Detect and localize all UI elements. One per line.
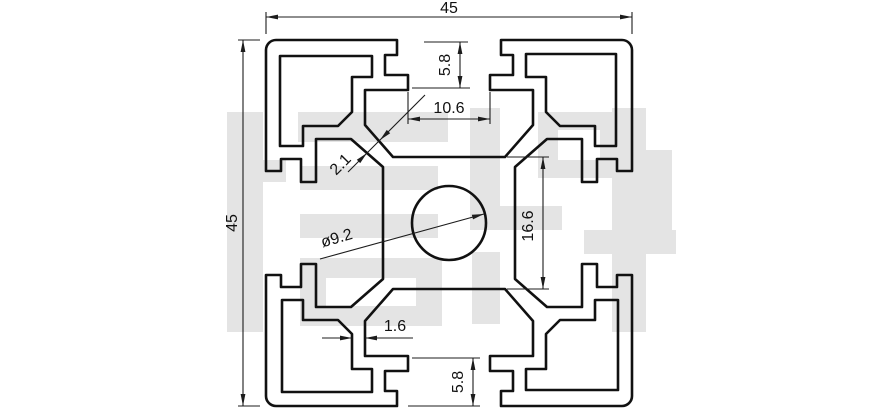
dim-label-dim-slot-depth-top: 5.8 [437, 54, 454, 76]
dimension-arrowhead [365, 336, 377, 341]
dimension-arrowhead [620, 15, 632, 20]
dimension-annotations [238, 12, 632, 406]
dim-label-dim-slot-width: 10.6 [433, 100, 464, 117]
dimension-arrowhead [241, 40, 246, 52]
dimension-arrowhead [241, 394, 246, 406]
technical-drawing-canvas: 信牌45455.810.62.1ø9.216.61.65.8 [0, 0, 880, 420]
technical-drawing-page: 信牌45455.810.62.1ø9.216.61.65.8 [0, 0, 880, 420]
dimension-arrowhead [458, 76, 463, 88]
watermark-stroke [300, 166, 438, 190]
dim-label-dim-slot-depth-bottom: 5.8 [450, 371, 467, 393]
corner-cavity-hole [526, 300, 618, 390]
watermark: 信牌 [227, 108, 676, 332]
dimension-arrowhead [458, 42, 463, 54]
dimension-arrowhead [266, 15, 278, 20]
dim-label-dim-wall-thickness: 1.6 [384, 318, 406, 335]
dimension-arrowhead [541, 277, 546, 289]
watermark-text: 信牌 [449, 220, 469, 233]
watermark-stroke-hole [326, 278, 416, 306]
dim-label-dim-overall-width: 45 [440, 0, 458, 17]
watermark-stroke [646, 150, 672, 246]
dimension-arrowhead [357, 151, 369, 163]
dim-label-dim-core-height: 16.6 [520, 210, 537, 241]
dimension-arrowhead [471, 394, 476, 406]
dimension-arrowhead [471, 358, 476, 370]
dim-label-dim-overall-height: 45 [224, 214, 241, 232]
dimension-arrowhead [340, 336, 352, 341]
